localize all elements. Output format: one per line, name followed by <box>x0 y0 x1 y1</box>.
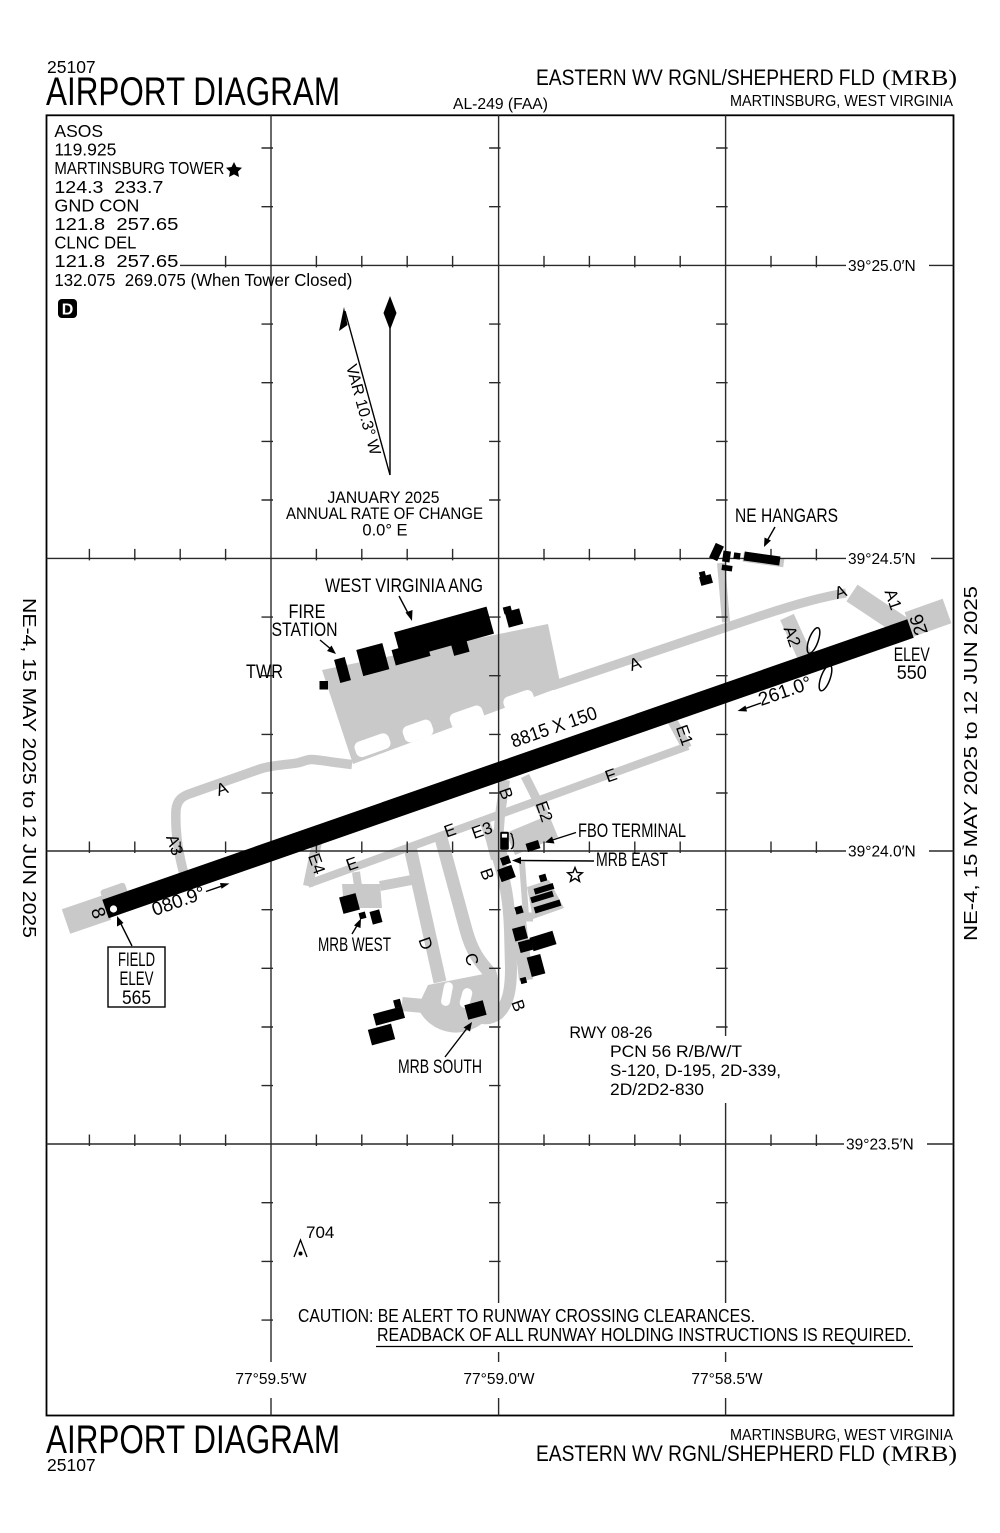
svg-text:MRB EAST: MRB EAST <box>596 850 668 871</box>
svg-text:EASTERN WV RGNL/SHEPHERD FLD: EASTERN WV RGNL/SHEPHERD FLD <box>536 1441 875 1466</box>
svg-text:2D/2D2-830: 2D/2D2-830 <box>610 1081 704 1099</box>
svg-text:121.8 257.65: 121.8 257.65 <box>54 251 178 271</box>
svg-text:132.075 269.075 (When Tower C: 132.075 269.075 (When Tower Closed) <box>54 270 352 290</box>
svg-text:MRB WEST: MRB WEST <box>318 935 391 956</box>
svg-text:704: 704 <box>306 1223 334 1242</box>
svg-text:39°24.5′N: 39°24.5′N <box>848 551 916 568</box>
svg-text:EASTERN WV RGNL/SHEPHERD FLD: EASTERN WV RGNL/SHEPHERD FLD <box>536 65 875 90</box>
svg-text:READBACK OF ALL RUNWAY HOLDING: READBACK OF ALL RUNWAY HOLDING INSTRUCTI… <box>377 1324 911 1345</box>
svg-text:CAUTION: BE ALERT TO RUNWAY CR: CAUTION: BE ALERT TO RUNWAY CROSSING CLE… <box>298 1305 755 1326</box>
svg-text:ANNUAL RATE OF CHANGE: ANNUAL RATE OF CHANGE <box>286 505 483 523</box>
svg-text:TWR: TWR <box>246 662 283 683</box>
svg-text:ELEV: ELEV <box>120 969 154 990</box>
svg-text:121.8 257.65: 121.8 257.65 <box>54 214 178 234</box>
svg-text:119.925: 119.925 <box>54 140 116 160</box>
svg-text:39°24.0′N: 39°24.0′N <box>848 844 916 861</box>
svg-text:39°25.0′N: 39°25.0′N <box>848 258 916 275</box>
svg-text:0.0° E: 0.0° E <box>362 522 407 540</box>
svg-text:MRB SOUTH: MRB SOUTH <box>398 1057 482 1078</box>
svg-text:(MRB): (MRB) <box>882 1441 957 1466</box>
svg-text:S-120, D-195, 2D-339,: S-120, D-195, 2D-339, <box>610 1062 781 1080</box>
svg-text:CLNC DEL: CLNC DEL <box>54 233 136 253</box>
svg-text:NE-4, 15 MAY 2025 to 12 JUN: NE-4, 15 MAY 2025 to 12 JUN 2025 <box>961 586 981 941</box>
svg-text:124.3 233.7: 124.3 233.7 <box>54 177 163 197</box>
svg-text:(MRB): (MRB) <box>882 65 957 90</box>
svg-text:ASOS: ASOS <box>54 121 103 141</box>
svg-text:AIRPORT DIAGRAM: AIRPORT DIAGRAM <box>46 70 340 114</box>
svg-text:STATION: STATION <box>272 620 338 641</box>
svg-text:PCN 56 R/B/W/T: PCN 56 R/B/W/T <box>610 1043 742 1061</box>
svg-text:FBO TERMINAL: FBO TERMINAL <box>578 821 686 842</box>
svg-text:GND CON: GND CON <box>54 195 139 215</box>
svg-text:565: 565 <box>122 988 151 1009</box>
svg-text:77°59.0′W: 77°59.0′W <box>463 1371 535 1388</box>
svg-text:MARTINSBURG TOWER: MARTINSBURG TOWER <box>54 158 224 178</box>
svg-text:MARTINSBURG, WEST VIRGINIA: MARTINSBURG, WEST VIRGINIA <box>730 93 954 110</box>
svg-text:AL-249 (FAA): AL-249 (FAA) <box>453 96 548 113</box>
svg-text:RWY 08-26: RWY 08-26 <box>569 1024 652 1042</box>
svg-text:77°59.5′W: 77°59.5′W <box>235 1371 307 1388</box>
svg-text:D: D <box>62 302 74 319</box>
svg-text:550: 550 <box>897 663 927 684</box>
svg-text:NE-4, 15 MAY 2025 to 12 JUN: NE-4, 15 MAY 2025 to 12 JUN 2025 <box>19 598 39 938</box>
svg-text:WEST VIRGINIA ANG: WEST VIRGINIA ANG <box>325 576 483 597</box>
svg-text:39°23.5′N: 39°23.5′N <box>846 1137 914 1154</box>
svg-text:77°58.5′W: 77°58.5′W <box>691 1371 763 1388</box>
svg-text:25107: 25107 <box>47 1455 96 1475</box>
svg-text:FIELD: FIELD <box>118 950 155 971</box>
svg-text:NE HANGARS: NE HANGARS <box>735 506 838 527</box>
